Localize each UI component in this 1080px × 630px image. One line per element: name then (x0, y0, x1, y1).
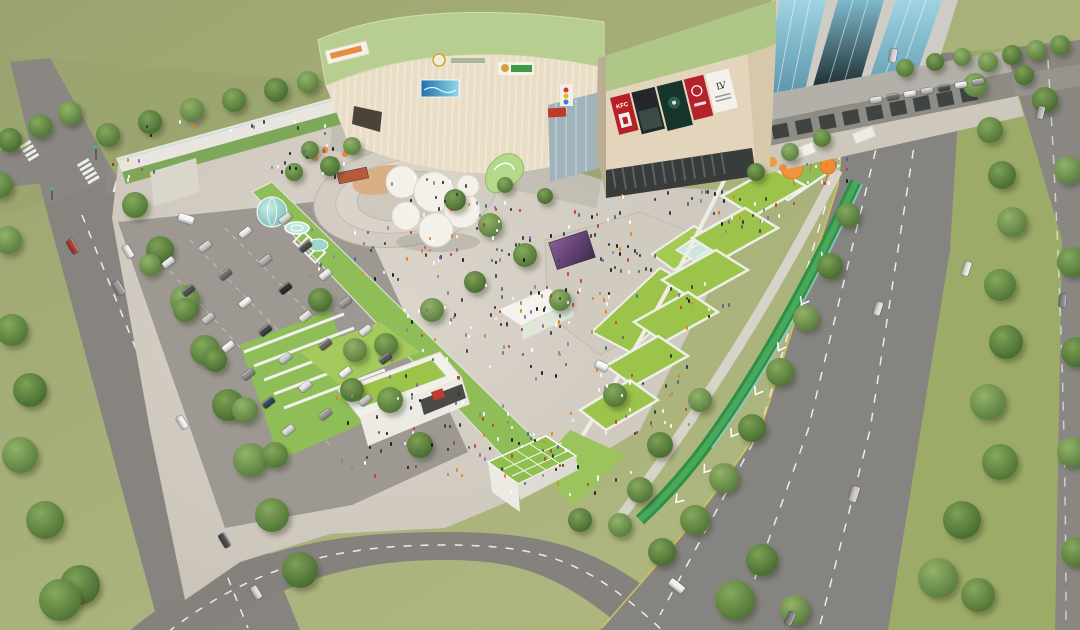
mall-sign-green (498, 62, 534, 75)
scene-svg: KFC LV (0, 0, 1080, 630)
mall-led-screen (421, 80, 459, 97)
mall-sign-red (548, 108, 566, 118)
aerial-rendering: KFC LV (0, 0, 1080, 630)
mall-sign-colorful (560, 84, 573, 106)
